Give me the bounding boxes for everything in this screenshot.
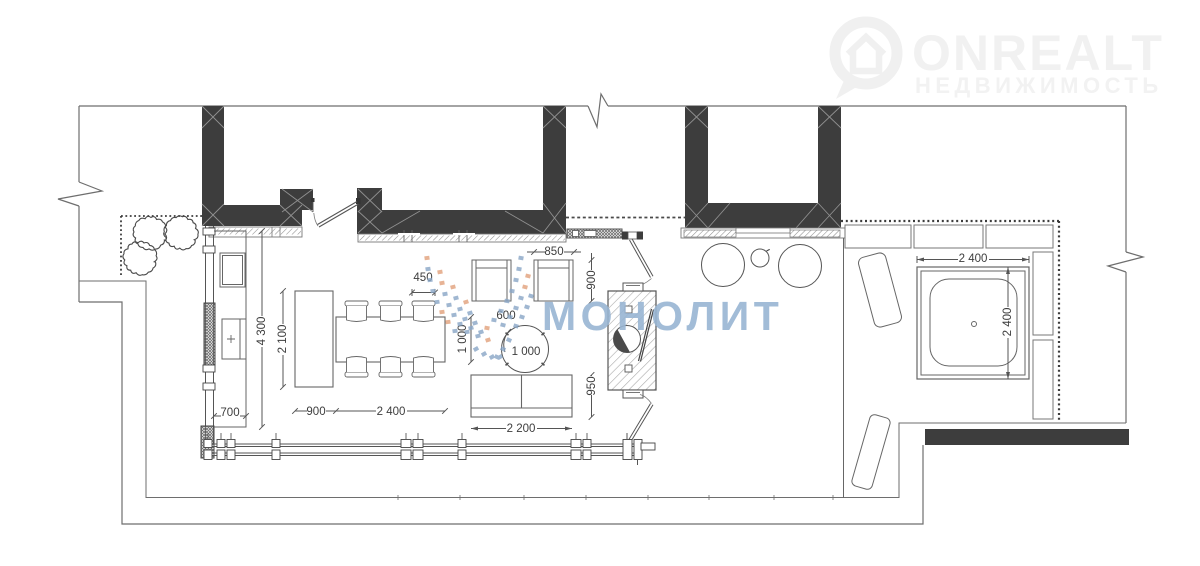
svg-text:2 400: 2 400: [1002, 308, 1014, 337]
svg-text:900: 900: [586, 270, 598, 289]
svg-text:2 400: 2 400: [377, 406, 406, 418]
svg-text:1 000: 1 000: [512, 346, 541, 358]
svg-text:МОНОЛИТ: МОНОЛИТ: [542, 293, 783, 339]
svg-text:1 000: 1 000: [457, 325, 469, 354]
svg-text:2 200: 2 200: [507, 423, 536, 435]
svg-text:2 400: 2 400: [959, 253, 988, 265]
svg-text:950: 950: [586, 376, 598, 395]
svg-text:700: 700: [220, 407, 239, 419]
svg-text:450: 450: [413, 272, 432, 284]
svg-text:2 100: 2 100: [277, 325, 289, 354]
svg-text:НЕДВИЖИМОСТЬ: НЕДВИЖИМОСТЬ: [915, 73, 1163, 98]
svg-text:4 300: 4 300: [256, 317, 268, 346]
svg-text:900: 900: [306, 406, 325, 418]
svg-text:850: 850: [544, 246, 563, 258]
